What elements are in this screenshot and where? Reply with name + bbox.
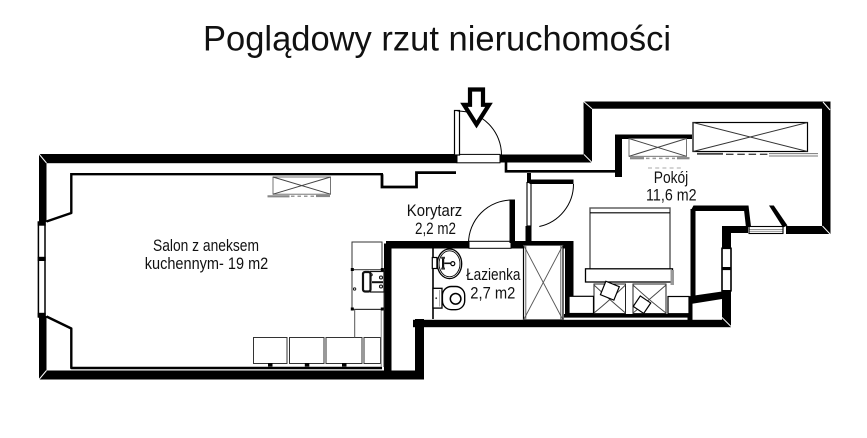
svg-text:2,7 m2: 2,7 m2 <box>470 285 515 303</box>
svg-text:Łazienka: Łazienka <box>466 266 521 284</box>
svg-text:Korytarz: Korytarz <box>407 202 463 220</box>
svg-text:2,2 m2: 2,2 m2 <box>415 220 456 238</box>
svg-text:Pokój: Pokój <box>654 169 689 187</box>
svg-text:kuchennym- 19 m2: kuchennym- 19 m2 <box>145 255 269 273</box>
svg-text:Poglądowy rzut nieruchomości: Poglądowy rzut nieruchomości <box>203 20 671 59</box>
svg-text:11,6 m2: 11,6 m2 <box>646 187 697 205</box>
svg-text:Salon z aneksem: Salon z aneksem <box>153 237 259 255</box>
